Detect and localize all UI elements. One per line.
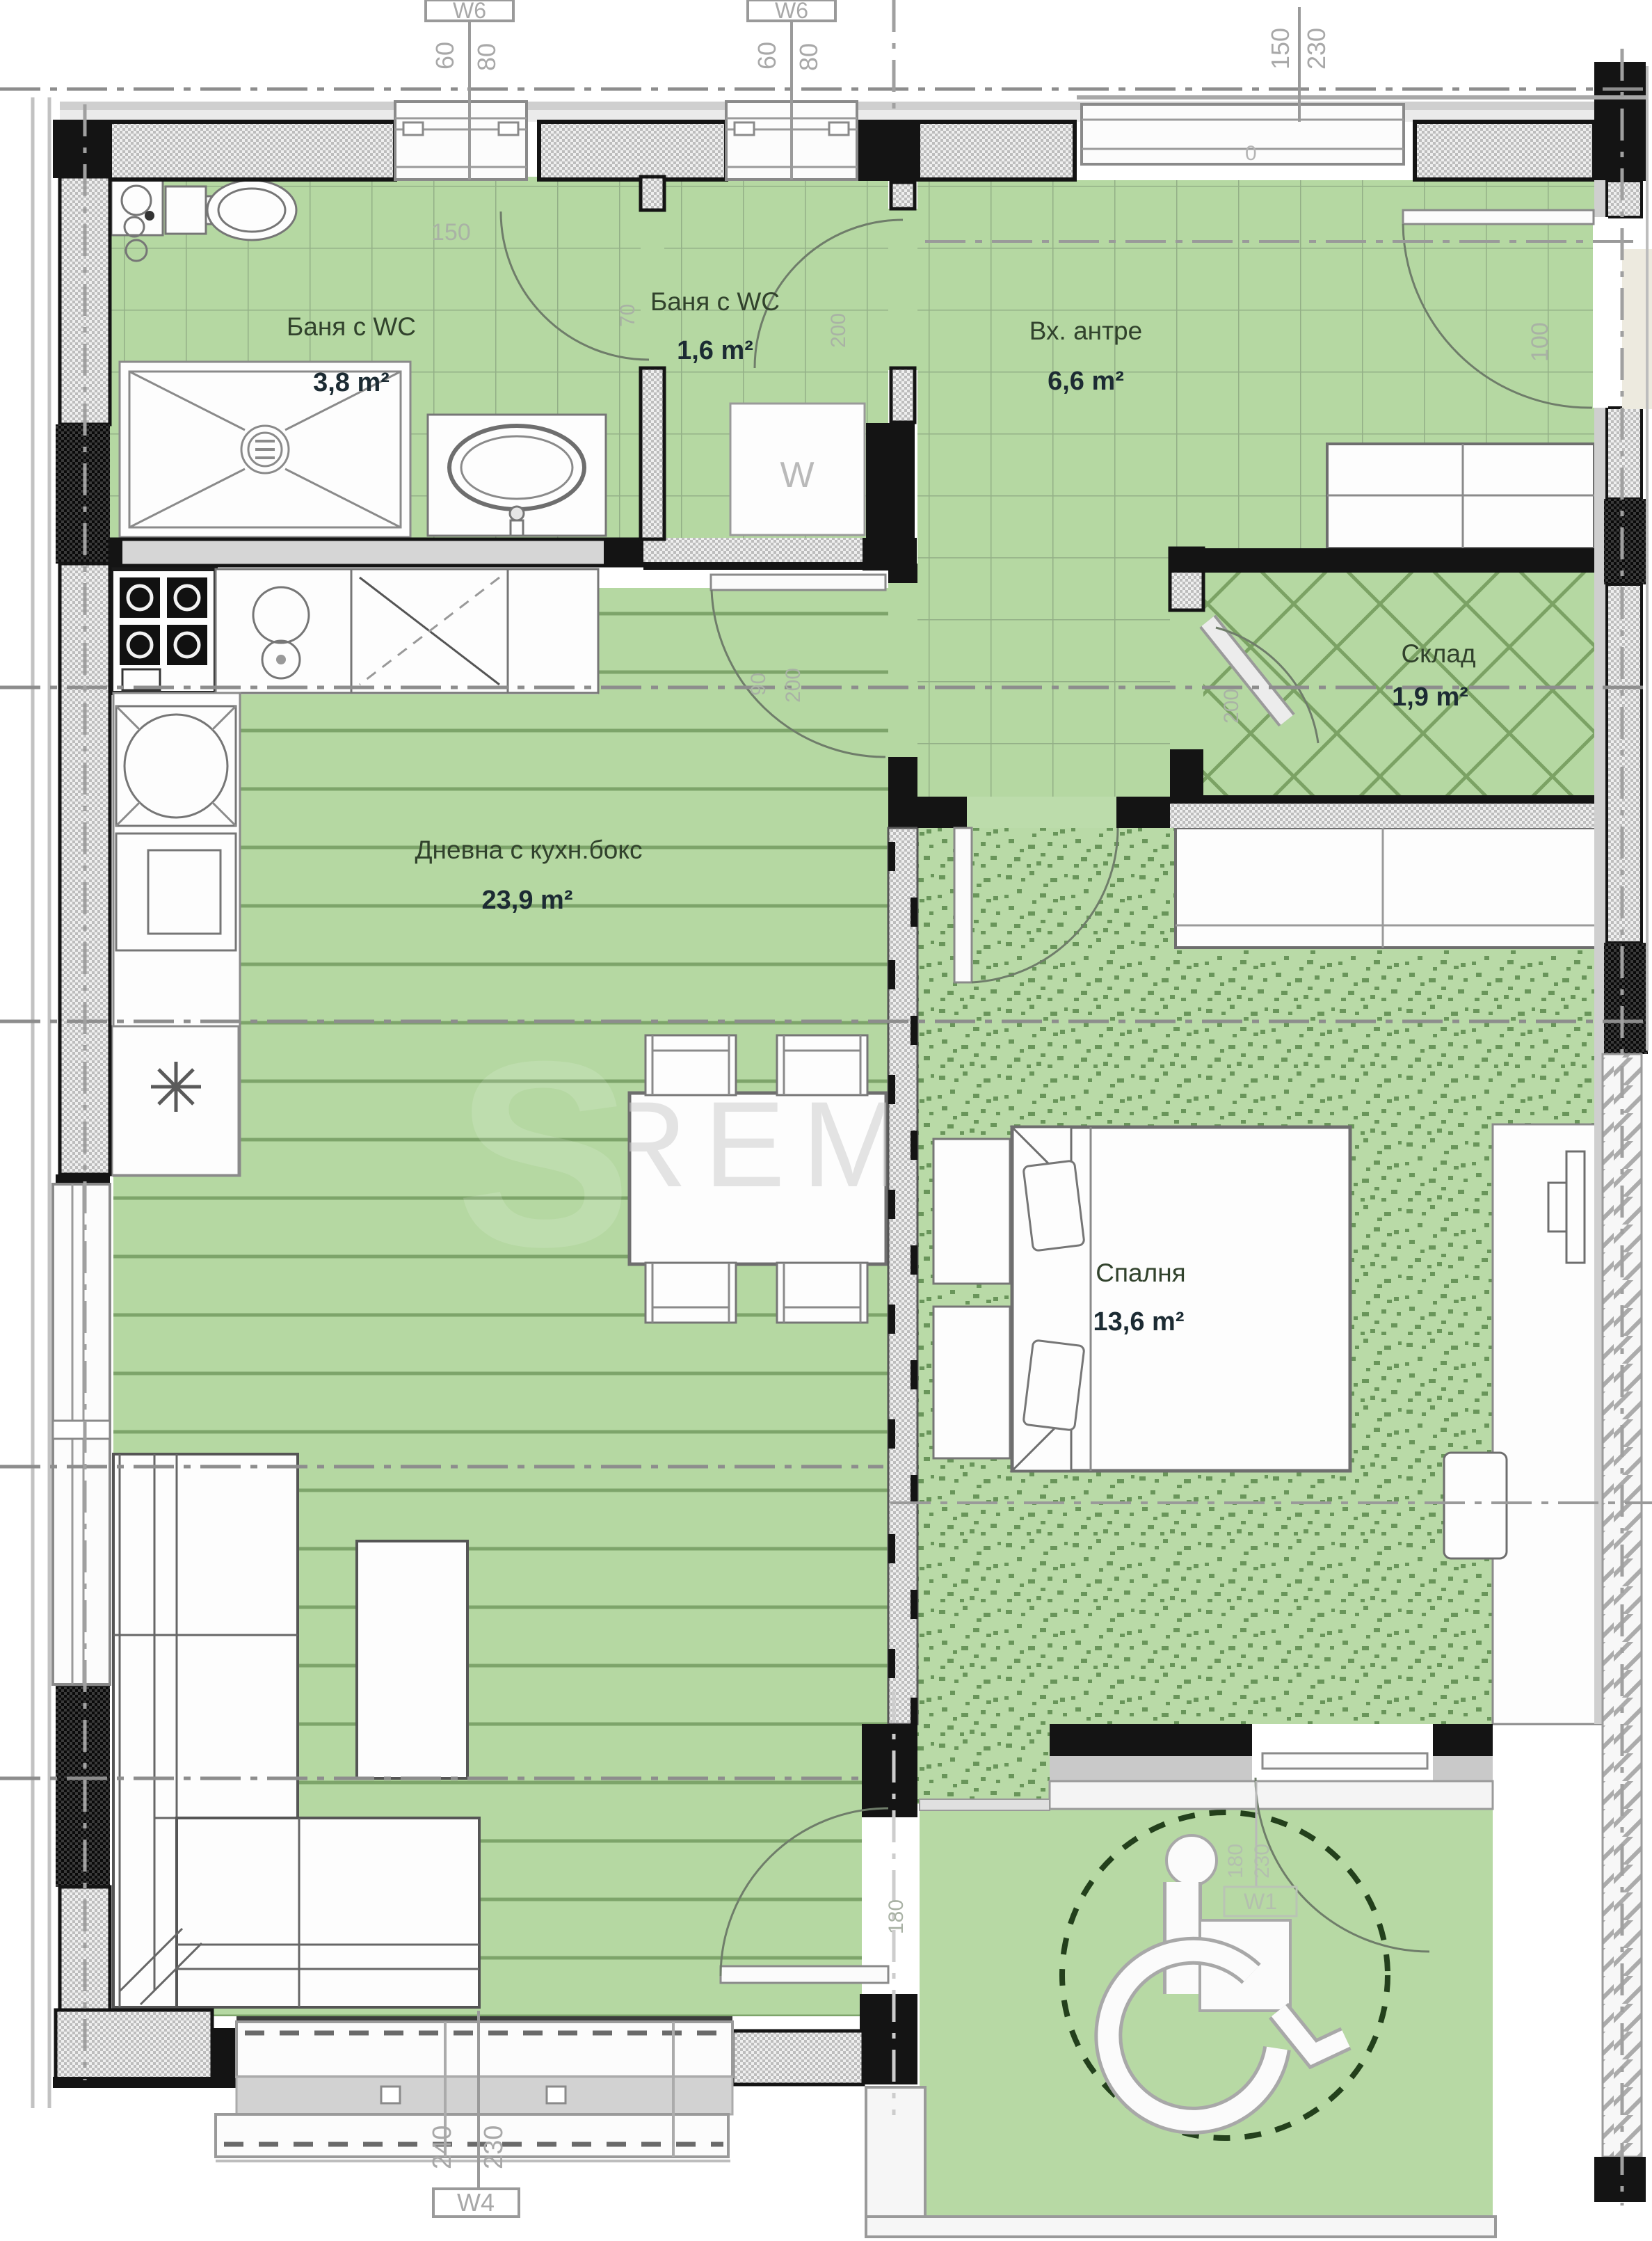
svg-text:W4: W4 bbox=[457, 2188, 495, 2217]
svg-text:3,8 m²: 3,8 m² bbox=[313, 368, 390, 397]
svg-text:100: 100 bbox=[1527, 322, 1553, 362]
svg-text:Дневна с кухн.бокс: Дневна с кухн.бокс bbox=[415, 836, 643, 864]
svg-text:80: 80 bbox=[794, 43, 823, 71]
svg-text:230: 230 bbox=[479, 2126, 508, 2169]
svg-text:23,9 m²: 23,9 m² bbox=[482, 886, 573, 915]
svg-text:Баня с WC: Баня с WC bbox=[650, 287, 780, 316]
svg-text:Спалня: Спалня bbox=[1096, 1259, 1185, 1287]
svg-text:0: 0 bbox=[1245, 142, 1257, 165]
svg-text:200: 200 bbox=[827, 313, 850, 348]
svg-text:180: 180 bbox=[1224, 1844, 1247, 1879]
svg-text:240: 240 bbox=[428, 2126, 457, 2169]
svg-text:180: 180 bbox=[885, 1899, 908, 1934]
svg-text:W6: W6 bbox=[453, 0, 486, 23]
svg-text:80: 80 bbox=[472, 43, 501, 71]
svg-text:230: 230 bbox=[1251, 1844, 1274, 1879]
svg-text:60: 60 bbox=[431, 42, 459, 70]
svg-text:200: 200 bbox=[1220, 689, 1243, 724]
svg-text:REM: REM bbox=[600, 1077, 920, 1213]
svg-text:230: 230 bbox=[1302, 28, 1331, 70]
svg-text:Баня с WC: Баня с WC bbox=[287, 312, 416, 341]
svg-text:S: S bbox=[456, 1006, 632, 1302]
svg-text:13,6 m²: 13,6 m² bbox=[1093, 1307, 1185, 1337]
svg-text:1,6 m²: 1,6 m² bbox=[677, 336, 753, 365]
svg-text:Склад: Склад bbox=[1401, 639, 1475, 668]
svg-text:1,9 m²: 1,9 m² bbox=[1392, 683, 1468, 712]
svg-text:W6: W6 bbox=[775, 0, 808, 23]
svg-text:70: 70 bbox=[616, 304, 639, 327]
svg-text:W1: W1 bbox=[1244, 1889, 1277, 1914]
svg-text:W: W bbox=[780, 455, 814, 495]
svg-text:60: 60 bbox=[753, 42, 781, 70]
svg-text:Вх. антре: Вх. антре bbox=[1029, 317, 1142, 345]
svg-text:90: 90 bbox=[747, 673, 770, 696]
svg-text:6,6 m²: 6,6 m² bbox=[1048, 367, 1124, 396]
svg-text:150: 150 bbox=[431, 219, 471, 246]
svg-text:150: 150 bbox=[1266, 28, 1294, 70]
svg-text:200: 200 bbox=[782, 668, 805, 703]
